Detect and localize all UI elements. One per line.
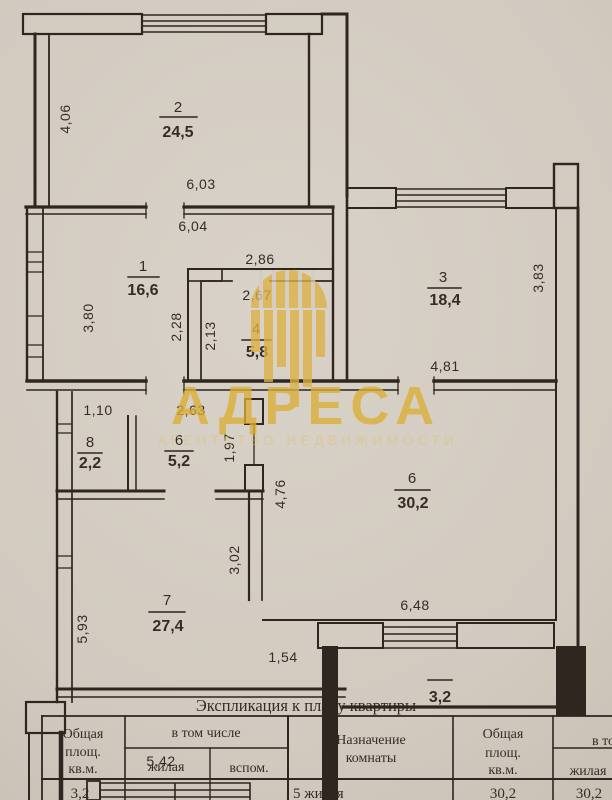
col-including2: в том числе bbox=[592, 734, 612, 749]
room-6l-area: 30,2 bbox=[397, 495, 428, 512]
room-label-8: 8 2,2 bbox=[78, 434, 102, 472]
room-6s-area: 5,2 bbox=[168, 453, 190, 470]
dim-room7-right-height: 3,02 bbox=[226, 545, 242, 574]
dim-room8-width: 1,10 bbox=[83, 402, 112, 418]
room-7-number: 7 bbox=[163, 592, 171, 609]
dim-room3-width: 4,81 bbox=[430, 358, 459, 374]
wall-block bbox=[26, 702, 65, 733]
room-3-number: 3 bbox=[439, 269, 447, 286]
dim-room2-height: 4,06 bbox=[57, 104, 73, 133]
room-2-area: 24,5 bbox=[162, 124, 193, 141]
wall-block bbox=[318, 623, 383, 648]
wall-ticks bbox=[27, 252, 43, 357]
room-8-area: 2,2 bbox=[79, 455, 101, 472]
col-including: в том числе bbox=[171, 726, 240, 741]
col-living2: жилая bbox=[569, 764, 607, 779]
window-room3 bbox=[396, 189, 506, 207]
room-label-2: 2 24,5 bbox=[160, 99, 197, 141]
room-8-number: 8 bbox=[86, 434, 94, 451]
dim-room1-height: 3,80 bbox=[80, 303, 96, 332]
dim-balcony-door-width: 1,54 bbox=[268, 649, 297, 665]
room-label-balcony: 3,2 bbox=[428, 680, 452, 706]
wall-room2-right-outer bbox=[322, 14, 347, 196]
door-jambs bbox=[146, 203, 184, 218]
wall-block bbox=[506, 188, 554, 208]
dim-room1-inner-height: 2,28 bbox=[168, 312, 184, 341]
wall-block bbox=[457, 623, 554, 648]
wall-ticks bbox=[57, 424, 72, 568]
wall-pillar bbox=[554, 164, 578, 208]
wall-block bbox=[188, 269, 222, 281]
col-total-area-line2: площ. bbox=[65, 745, 101, 760]
wall-block bbox=[245, 465, 263, 491]
room-1-area: 16,6 bbox=[127, 282, 158, 299]
dim-room6-height: 4,76 bbox=[272, 479, 288, 508]
dim-room7-height: 5,93 bbox=[74, 614, 90, 643]
room-6l-number: 6 bbox=[408, 470, 416, 487]
row-total-right: 30,2 bbox=[490, 786, 516, 800]
dim-room3-height: 3,83 bbox=[530, 263, 546, 292]
room-label-7: 7 27,4 bbox=[149, 592, 185, 635]
dim-room4-outer-width: 2,86 bbox=[245, 251, 274, 267]
wall-balcony-left bbox=[322, 646, 338, 800]
dim-room2-width: 6,03 bbox=[186, 176, 215, 192]
room-2-number: 2 bbox=[174, 99, 182, 116]
dim-room6-width: 6,48 bbox=[400, 597, 429, 613]
balcony-area: 3,2 bbox=[429, 689, 451, 706]
col-aux: вспом. bbox=[229, 761, 268, 776]
col-total-area2-line2: площ. bbox=[485, 746, 521, 761]
watermark: АДРЕСА АГЕНТСТВО НЕДВИЖИМОСТИ bbox=[158, 270, 458, 448]
wall-balcony-right-pillar bbox=[556, 646, 586, 716]
col-total-area2-line3: кв.м. bbox=[488, 763, 517, 778]
room-label-1: 1 16,6 bbox=[127, 258, 159, 299]
wall-block bbox=[347, 188, 396, 208]
wall-block bbox=[266, 14, 322, 34]
dim-room1-width: 6,04 bbox=[178, 218, 207, 234]
table-header-left: Общая площ. кв.м. в том числе жилая вспо… bbox=[63, 726, 269, 777]
col-total-area-line1: Общая bbox=[63, 727, 104, 742]
watermark-tagline-text: АГЕНТСТВО НЕДВИЖИМОСТИ bbox=[158, 433, 458, 448]
room-1-number: 1 bbox=[139, 258, 147, 275]
window-room6 bbox=[383, 627, 457, 648]
window-room2 bbox=[142, 15, 266, 32]
room-label-3: 3 18,4 bbox=[428, 269, 461, 309]
apartment-floor-plan-scan: Экспликация к плану квартиры Общая площ.… bbox=[0, 0, 612, 800]
col-total-area2-line1: Общая bbox=[483, 727, 524, 742]
wall-block bbox=[23, 14, 142, 34]
room-7-area: 27,4 bbox=[152, 618, 183, 635]
dim-room4-height: 2,13 bbox=[202, 321, 218, 350]
room-3-area: 18,4 bbox=[429, 292, 460, 309]
table-header-right: Назначение комнаты Общая площ. кв.м. в т… bbox=[336, 727, 612, 779]
col-total-area-line3: кв.м. bbox=[68, 762, 97, 777]
col-purpose-line2: комнаты bbox=[346, 751, 397, 766]
window-lower-unit bbox=[100, 783, 250, 800]
watermark-brand-text: АДРЕСА bbox=[171, 376, 441, 436]
room-label-6-large: 6 30,2 bbox=[395, 470, 430, 512]
dim-lower-width: 5,42 bbox=[146, 753, 175, 769]
col-purpose-line1: Назначение bbox=[336, 733, 405, 748]
row-living-right: 30,2 bbox=[576, 786, 602, 800]
